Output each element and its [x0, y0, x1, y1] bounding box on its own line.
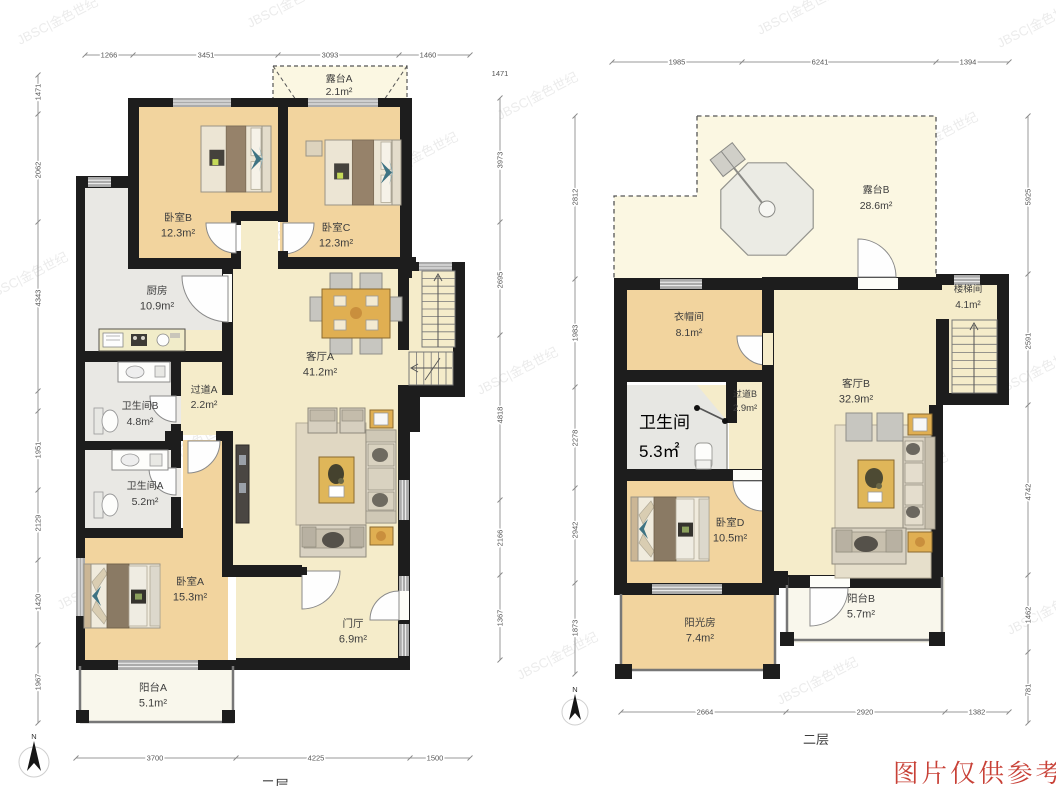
svg-text:41.2m²: 41.2m²: [303, 367, 338, 379]
svg-text:3451: 3451: [198, 51, 215, 60]
svg-text:2166: 2166: [496, 530, 505, 547]
svg-text:N: N: [31, 732, 36, 741]
svg-text:1500: 1500: [427, 754, 444, 763]
svg-text:2591: 2591: [1024, 333, 1033, 350]
svg-text:6241: 6241: [812, 58, 829, 67]
svg-text:2.9m²: 2.9m²: [733, 403, 757, 414]
svg-text:4818: 4818: [496, 407, 505, 424]
svg-text:1420: 1420: [34, 594, 43, 611]
svg-text:5.7m²: 5.7m²: [847, 609, 875, 621]
svg-text:4225: 4225: [308, 754, 325, 763]
svg-text:1967: 1967: [34, 674, 43, 691]
svg-text:1460: 1460: [420, 51, 437, 60]
svg-text:2942: 2942: [571, 522, 580, 539]
svg-text:4343: 4343: [34, 290, 43, 307]
svg-text:4.8m²: 4.8m²: [127, 416, 154, 428]
svg-text:C: C: [343, 222, 351, 234]
svg-text:12.3m²: 12.3m²: [319, 238, 354, 250]
svg-text:2664: 2664: [697, 708, 714, 717]
svg-text:A: A: [211, 385, 218, 396]
svg-text:2695: 2695: [496, 272, 505, 289]
svg-text:2278: 2278: [571, 430, 580, 447]
svg-text:4742: 4742: [1024, 484, 1033, 501]
svg-text:1983: 1983: [571, 325, 580, 342]
svg-text:D: D: [737, 517, 745, 529]
svg-text:15.3m²: 15.3m²: [173, 592, 208, 604]
svg-text:1367: 1367: [496, 610, 505, 627]
svg-text:1266: 1266: [101, 51, 118, 60]
svg-text:8.1m²: 8.1m²: [676, 327, 703, 339]
svg-text:2812: 2812: [571, 189, 580, 206]
svg-text:5.1m²: 5.1m²: [139, 698, 167, 710]
svg-text:1471: 1471: [34, 84, 43, 101]
svg-text:1951: 1951: [34, 442, 43, 459]
svg-text:2062: 2062: [34, 162, 43, 179]
svg-text:1985: 1985: [669, 58, 686, 67]
svg-text:3093: 3093: [322, 51, 339, 60]
svg-text:1382: 1382: [969, 708, 986, 717]
svg-text:1471: 1471: [492, 69, 509, 78]
svg-text:N: N: [572, 685, 577, 694]
svg-text:5.2m²: 5.2m²: [132, 496, 159, 508]
svg-text:B: B: [863, 378, 870, 390]
svg-text:10.5m²: 10.5m²: [713, 533, 748, 545]
svg-text:10.9m²: 10.9m²: [140, 301, 175, 313]
svg-text:1394: 1394: [960, 58, 977, 67]
svg-text:A: A: [160, 682, 167, 694]
svg-text:A: A: [197, 576, 204, 588]
svg-text:781: 781: [1024, 684, 1033, 697]
svg-text:2920: 2920: [857, 708, 874, 717]
svg-text:3700: 3700: [147, 754, 164, 763]
svg-text:5.3: 5.3: [639, 442, 663, 461]
svg-text:B: B: [751, 389, 757, 399]
svg-text:4.1m²: 4.1m²: [955, 300, 981, 311]
svg-text:2.1m²: 2.1m²: [326, 86, 353, 98]
svg-text:5925: 5925: [1024, 189, 1033, 206]
svg-text:A: A: [157, 481, 164, 492]
svg-text:6.9m²: 6.9m²: [339, 634, 367, 646]
svg-text:3973: 3973: [496, 152, 505, 169]
svg-text:2129: 2129: [34, 515, 43, 532]
svg-text:32.9m²: 32.9m²: [839, 394, 874, 406]
svg-text:1462: 1462: [1024, 607, 1033, 624]
svg-text:B: B: [152, 401, 159, 412]
svg-text:A: A: [346, 74, 353, 85]
svg-text:B: B: [185, 212, 192, 224]
svg-text:28.6m²: 28.6m²: [860, 200, 893, 212]
svg-text:7.4m²: 7.4m²: [686, 633, 714, 645]
svg-text:12.3m²: 12.3m²: [161, 228, 196, 240]
svg-text:B: B: [883, 185, 890, 196]
svg-text:1873: 1873: [571, 620, 580, 637]
svg-text:2.2m²: 2.2m²: [191, 399, 218, 411]
svg-text:A: A: [327, 351, 334, 363]
svg-text:B: B: [868, 593, 875, 605]
